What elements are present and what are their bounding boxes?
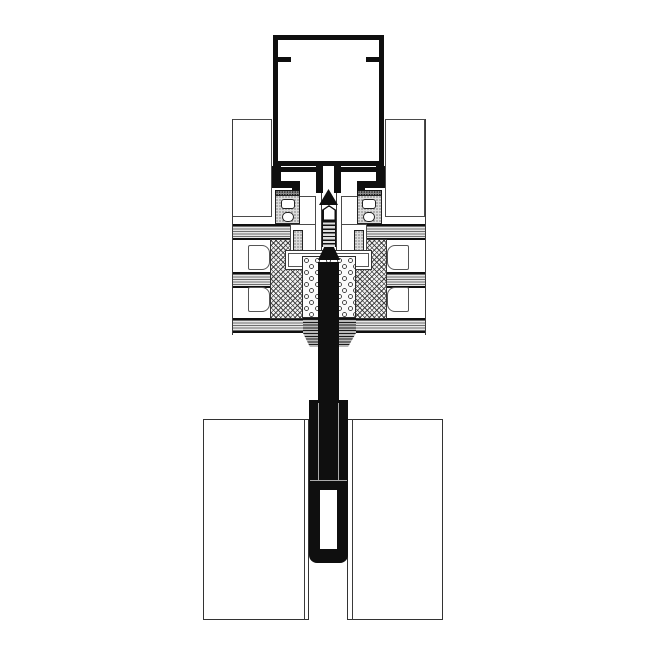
gasket-chamber-left-top <box>281 199 295 209</box>
mullion-screw-port-right <box>366 57 379 62</box>
technical-drawing-canvas <box>0 0 660 660</box>
lower-right-glass-edge-line <box>352 419 353 620</box>
toggle-stem <box>318 262 339 402</box>
mullion-box-profile <box>273 35 384 166</box>
mullion-lower-lip-right <box>340 167 377 172</box>
screw-shank-fill <box>324 207 335 220</box>
spacer-cavity-right-bottom <box>387 287 409 312</box>
toggle-body <box>309 400 348 484</box>
upper-right-panel <box>385 119 425 217</box>
gasket-chamber-right-bottom <box>363 212 375 222</box>
screw-shank-outline <box>322 205 336 221</box>
lower-right-glass-panel <box>347 419 443 620</box>
glass-pane-inner-left <box>233 318 303 333</box>
screw-channel-right-line <box>336 193 337 252</box>
toggle-body-seam-left <box>318 403 319 480</box>
gasket-chamber-right-top <box>362 199 376 209</box>
spacer-cavity-left-bottom <box>248 287 270 312</box>
toggle-body-seam-right <box>338 403 339 480</box>
lower-left-glass-edge-line <box>304 419 305 620</box>
mullion-lower-lip-left <box>280 167 317 172</box>
clip-hook-left-foot <box>272 181 300 188</box>
clip-hook-right-foot <box>357 181 385 188</box>
inner-gasket-left <box>293 230 303 252</box>
glass-pane-inner-right <box>354 318 425 333</box>
spacer-cavity-right-top <box>387 245 409 270</box>
screw-channel-wall-right <box>334 166 341 193</box>
gasket-chamber-left-bottom <box>282 212 294 222</box>
toggle-fork-slot <box>320 490 337 549</box>
toggle-body-seam-bottom <box>310 480 347 481</box>
upper-assembly-right-edge <box>425 119 426 335</box>
screw-thread <box>322 221 336 247</box>
screw-channel-wall-left <box>316 166 323 193</box>
mullion-screw-port-left <box>278 57 291 62</box>
lower-left-glass-panel <box>203 419 309 620</box>
upper-left-panel <box>232 119 272 217</box>
spacer-cavity-left-top <box>248 245 270 270</box>
inner-gasket-right <box>354 230 364 252</box>
